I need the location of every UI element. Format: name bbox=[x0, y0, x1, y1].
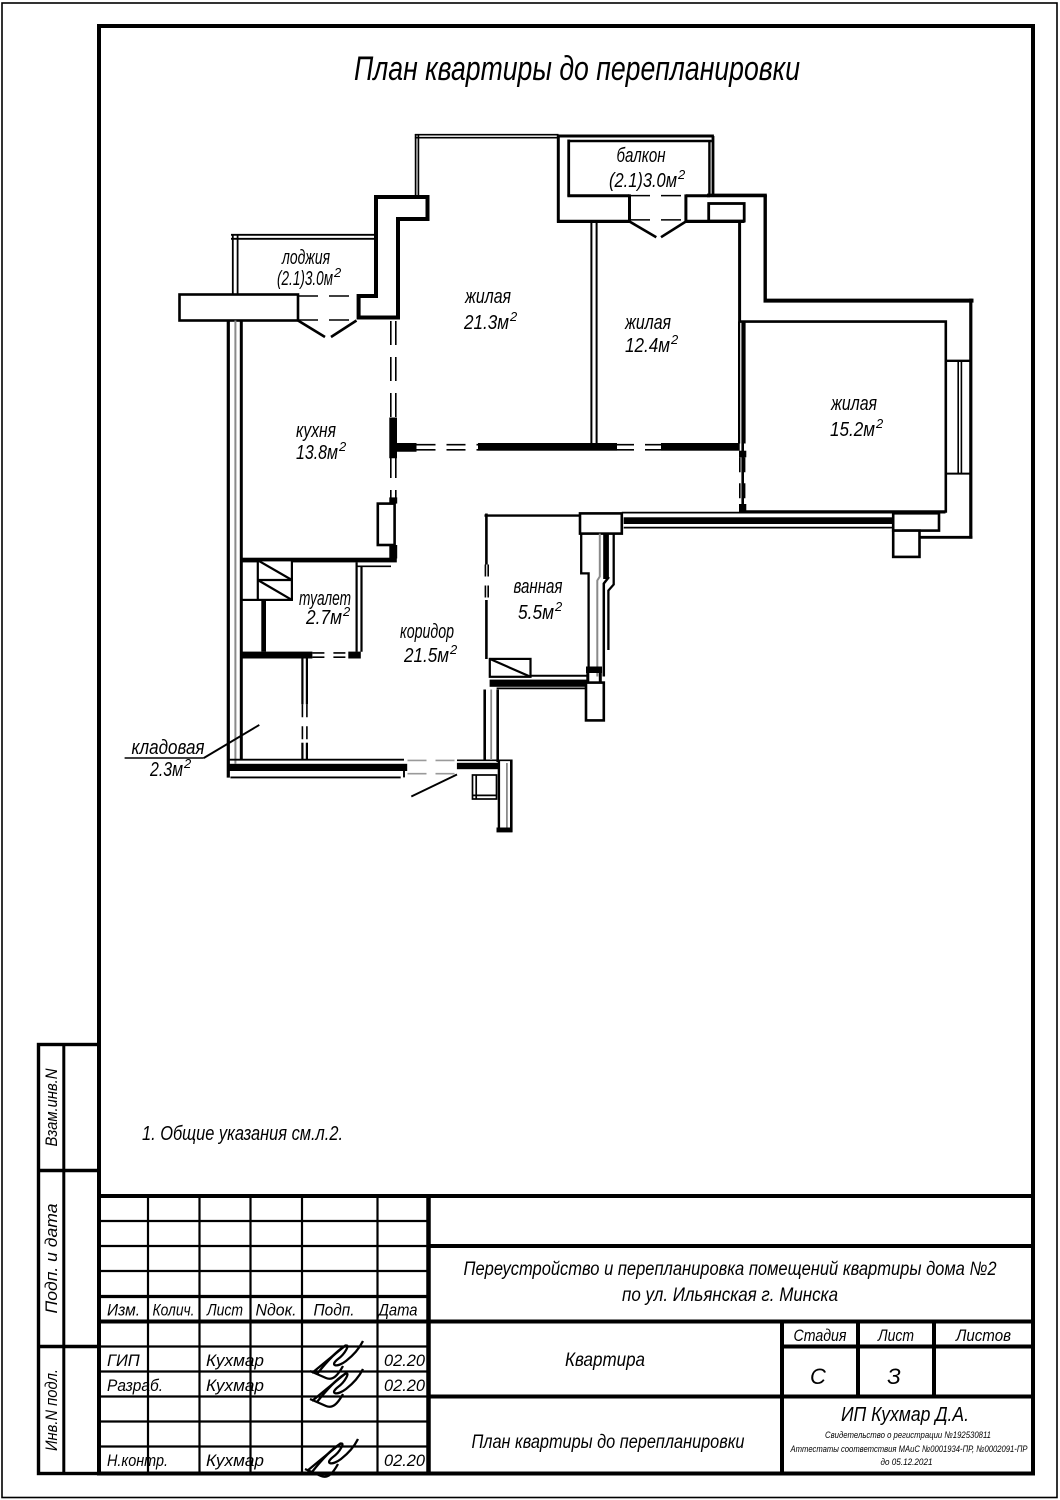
svg-text:5.5м: 5.5м bbox=[518, 602, 554, 624]
svg-text:ванная: ванная bbox=[514, 575, 563, 598]
svg-text:лоджия: лоджия bbox=[281, 246, 330, 269]
svg-text:21.5м: 21.5м bbox=[403, 645, 449, 667]
svg-text:Стадия: Стадия bbox=[794, 1327, 847, 1345]
svg-text:до 05.12.2021: до 05.12.2021 bbox=[881, 1457, 933, 1468]
svg-text:Изм.: Изм. bbox=[107, 1302, 140, 1320]
svg-text:Дата: Дата bbox=[377, 1302, 418, 1320]
svg-text:Колич.: Колич. bbox=[153, 1302, 195, 1320]
svg-text:Свидетельство о регистрации №1: Свидетельство о регистрации №192530811 bbox=[825, 1430, 991, 1441]
svg-text:2: 2 bbox=[670, 332, 679, 347]
svg-text:балкон: балкон bbox=[617, 144, 666, 167]
svg-text:2: 2 bbox=[333, 265, 342, 280]
svg-text:2: 2 bbox=[509, 309, 518, 324]
svg-text:(2.1)3.0м: (2.1)3.0м bbox=[277, 268, 333, 290]
svg-text:21.3м: 21.3м bbox=[463, 312, 509, 334]
svg-text:02.20: 02.20 bbox=[384, 1377, 426, 1395]
svg-text:Лист: Лист bbox=[877, 1327, 914, 1345]
svg-text:2: 2 bbox=[554, 599, 563, 614]
svg-text:Переустройство и перепланировк: Переустройство и перепланировка помещени… bbox=[464, 1258, 997, 1280]
svg-text:Подп. и дата: Подп. и дата bbox=[42, 1204, 61, 1314]
svg-text:Лист: Лист bbox=[206, 1302, 243, 1320]
svg-text:С: С bbox=[810, 1364, 826, 1389]
svg-text:Nдок.: Nдок. bbox=[256, 1302, 297, 1320]
svg-text:План квартиры до перепланировк: План квартиры до перепланировки bbox=[472, 1431, 745, 1453]
svg-text:2: 2 bbox=[183, 756, 192, 771]
svg-text:Аттестаты соответствия МАиС №0: Аттестаты соответствия МАиС №0001934-ПР,… bbox=[790, 1444, 1028, 1455]
svg-text:коридор: коридор bbox=[400, 620, 454, 643]
svg-text:Квартира: Квартира bbox=[565, 1349, 645, 1371]
svg-text:13.8м: 13.8м bbox=[296, 442, 338, 464]
svg-text:Кухмар: Кухмар bbox=[206, 1452, 264, 1470]
svg-text:Кухмар: Кухмар bbox=[206, 1377, 264, 1395]
svg-text:Кухмар: Кухмар bbox=[206, 1352, 264, 1370]
svg-text:2: 2 bbox=[338, 439, 347, 454]
svg-text:2: 2 bbox=[342, 604, 351, 619]
svg-text:1. Общие указания см.л.2.: 1. Общие указания см.л.2. bbox=[142, 1123, 343, 1145]
svg-text:Разраб.: Разраб. bbox=[107, 1377, 163, 1395]
svg-text:2: 2 bbox=[449, 642, 458, 657]
svg-text:План квартиры до перепланировк: План квартиры до перепланировки bbox=[354, 50, 800, 88]
svg-text:Листов: Листов bbox=[955, 1327, 1011, 1345]
svg-text:кухня: кухня bbox=[296, 419, 336, 442]
svg-text:2.3м: 2.3м bbox=[149, 759, 183, 781]
svg-text:Подп.: Подп. bbox=[314, 1302, 355, 1320]
svg-text:15.2м: 15.2м bbox=[830, 419, 875, 441]
svg-text:ИП Кухмар Д.А.: ИП Кухмар Д.А. bbox=[841, 1403, 969, 1426]
svg-text:2.7м: 2.7м bbox=[305, 607, 342, 629]
svg-text:(2.1)3.0м: (2.1)3.0м bbox=[609, 170, 677, 192]
svg-text:Н.контр.: Н.контр. bbox=[107, 1452, 168, 1470]
svg-text:2: 2 bbox=[875, 416, 884, 431]
svg-text:жилая: жилая bbox=[464, 285, 511, 308]
svg-text:кладовая: кладовая bbox=[132, 736, 205, 759]
svg-text:З: З bbox=[887, 1364, 901, 1389]
svg-text:Взам.инв.N: Взам.инв.N bbox=[42, 1068, 61, 1147]
svg-text:по ул. Ильянская г. Минска: по ул. Ильянская г. Минска bbox=[622, 1284, 838, 1306]
svg-text:12.4м: 12.4м bbox=[625, 335, 670, 357]
svg-text:2: 2 bbox=[677, 167, 686, 182]
svg-text:ГИП: ГИП bbox=[107, 1352, 140, 1370]
svg-text:Инв.N подл.: Инв.N подл. bbox=[42, 1369, 61, 1451]
svg-text:жилая: жилая bbox=[624, 311, 671, 334]
svg-text:02.20: 02.20 bbox=[384, 1352, 426, 1370]
svg-text:жилая: жилая bbox=[830, 392, 877, 415]
svg-text:02.20: 02.20 bbox=[384, 1452, 426, 1470]
